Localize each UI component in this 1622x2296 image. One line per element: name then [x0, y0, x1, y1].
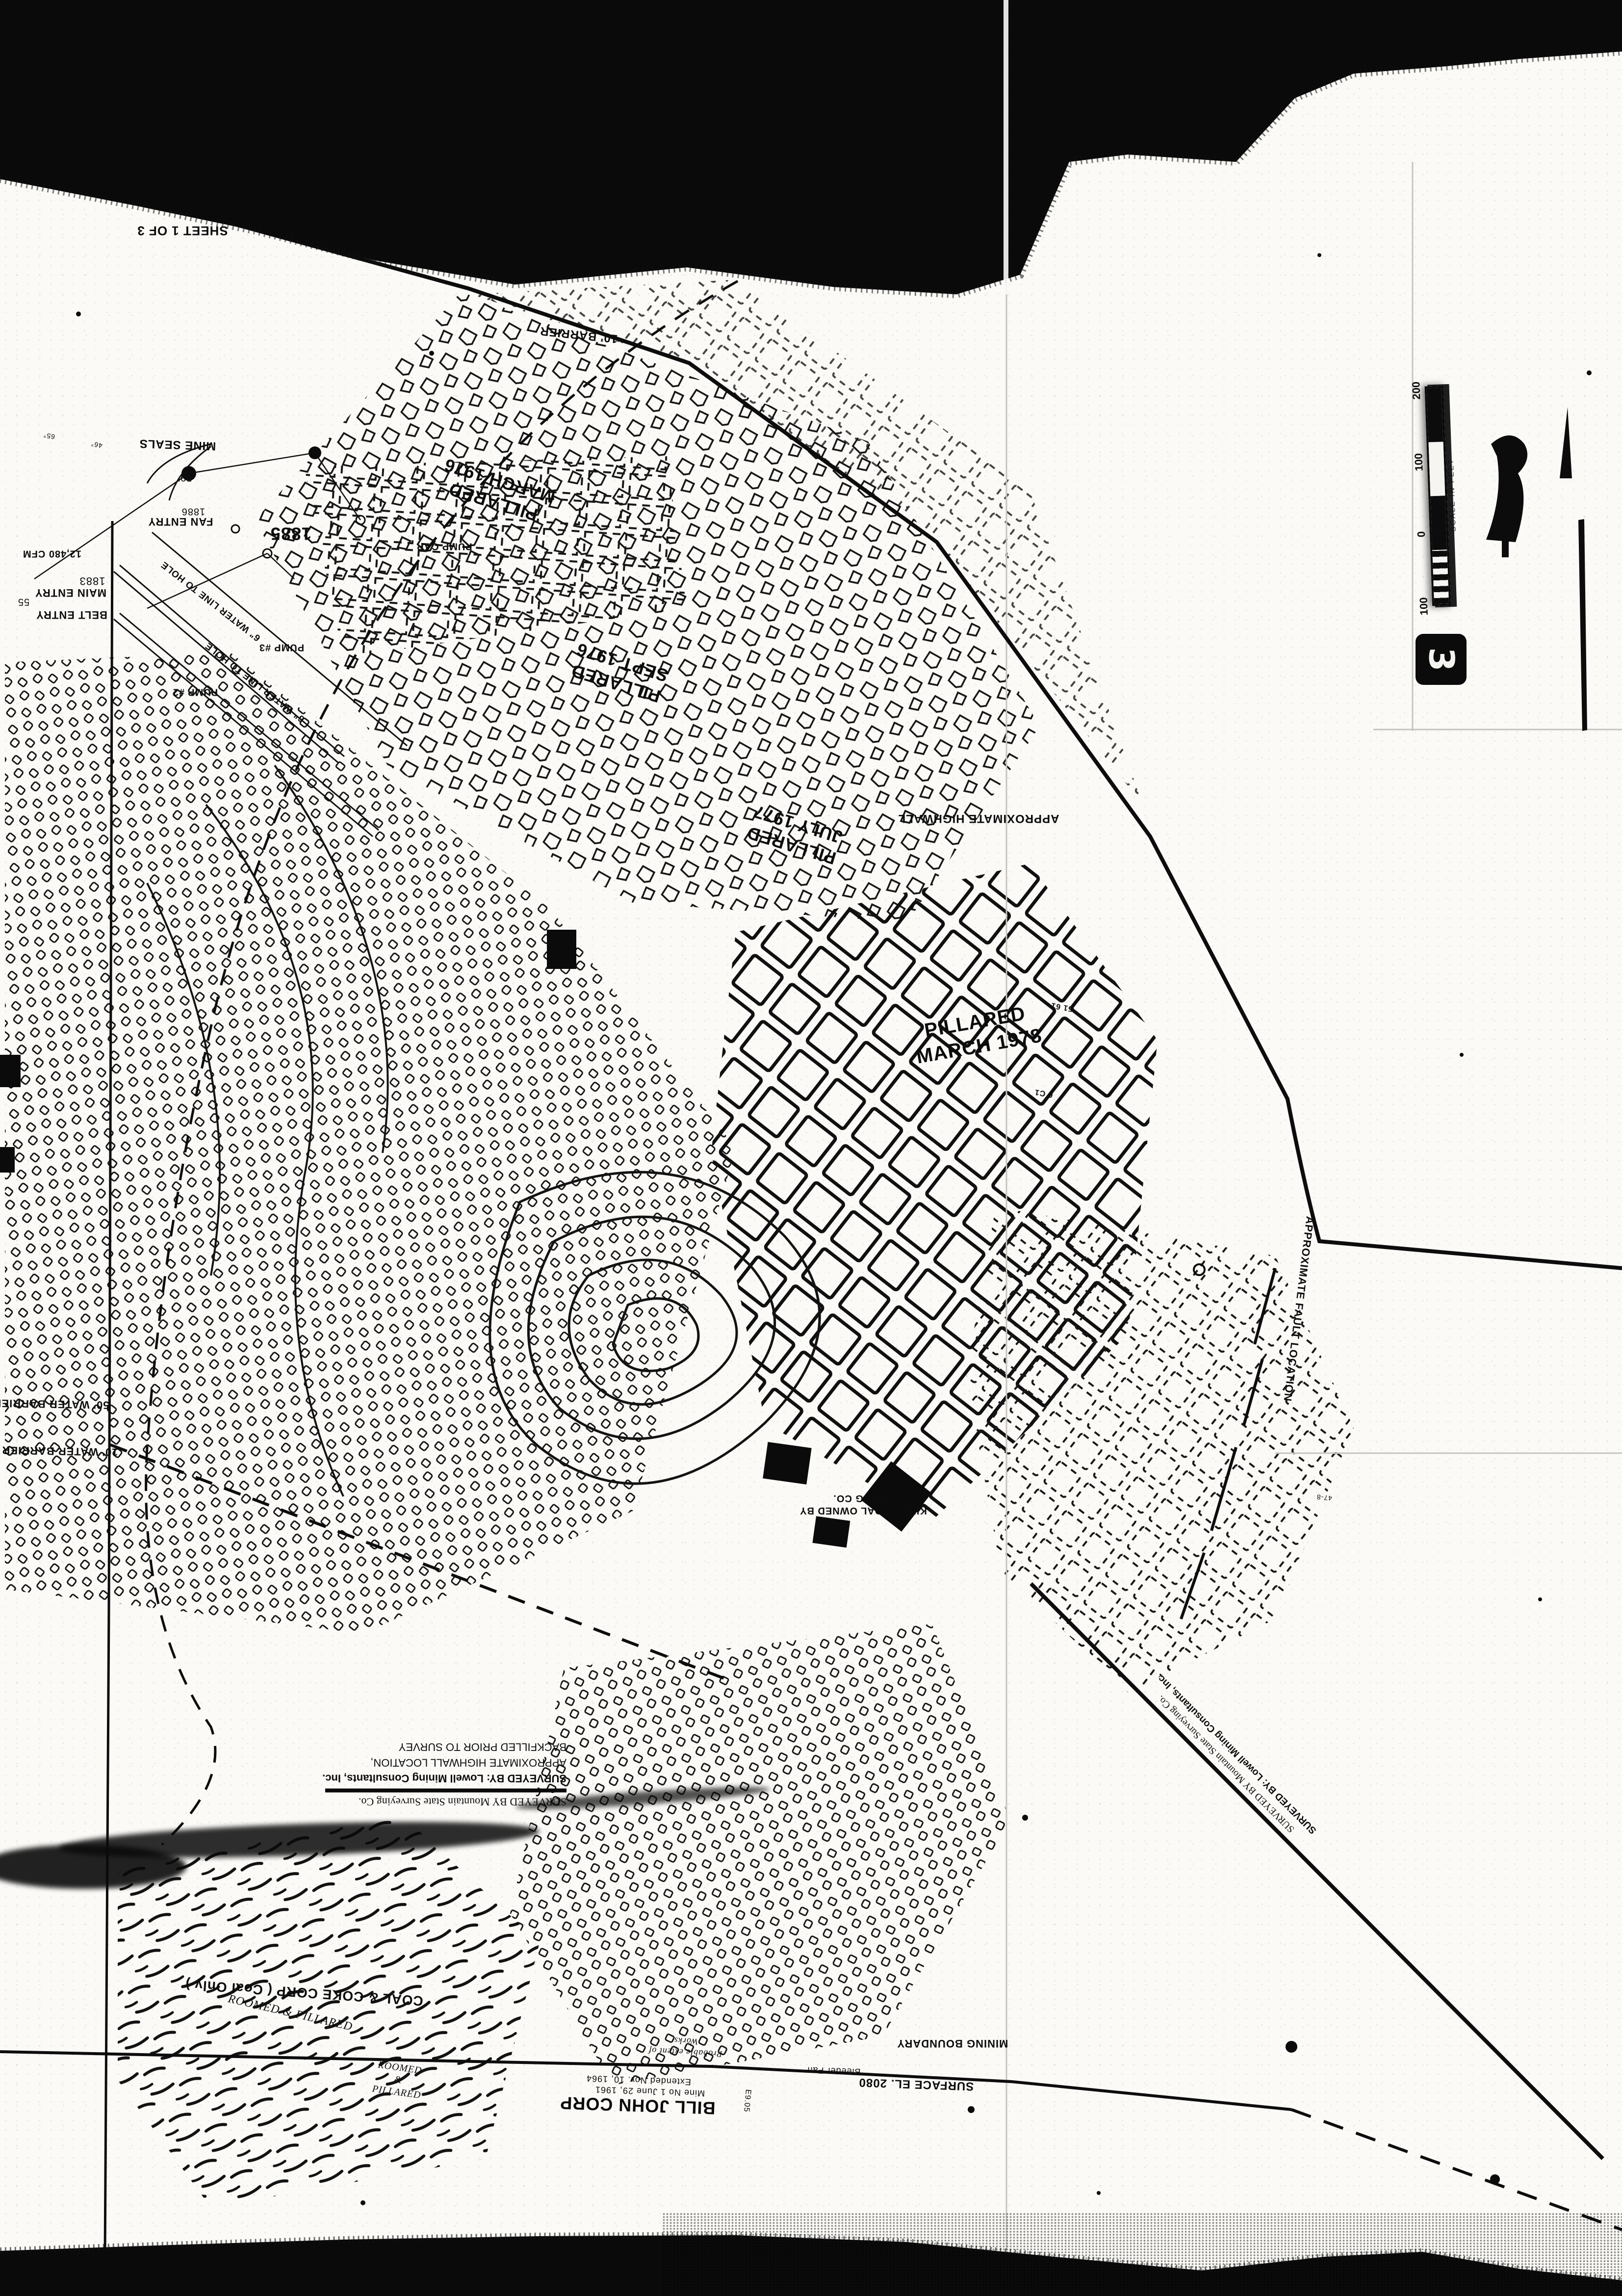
probable-extent-label: Probable extent of Works — [648, 2034, 723, 2060]
fan-entry-year-label: 1886 — [181, 505, 206, 518]
map-label-layer: SHEET 1 OF 310' BARRIERMINE SEALS50'12,4… — [0, 0, 1622, 2296]
bleeder-fan-label: Bleeder Fan — [807, 2064, 861, 2077]
bearing-46-label: 46° — [90, 439, 103, 449]
pillared-sept-1976-label: PILLARED SEPT 1976 — [567, 638, 671, 708]
surveyed-by-line: SURVEYED BY: Lowell Mining Consultants, … — [321, 1771, 566, 1786]
roomed-pillared-label-2: ROOMED & PILLARED — [371, 2059, 425, 2102]
sheet-number-tile: 3 — [1416, 634, 1467, 685]
mining-boundary-label: MINING BOUNDARY — [897, 2036, 1008, 2050]
pump-3-label: PUMP #3 — [259, 641, 304, 653]
scale-bar-cell — [1427, 388, 1443, 442]
barrier-55-label: 55 — [18, 596, 29, 608]
surface-elevation-label: SURFACE EL. 2080 — [858, 2075, 974, 2093]
scale-tick: 0 — [1415, 531, 1428, 537]
year-1885-label: 1885 — [270, 523, 311, 545]
pump-cap-label: PUMP CAP — [416, 540, 472, 552]
airflow-cfm-label: 12,480 CFM — [23, 548, 81, 560]
station-mark-51-61: 51 61 — [1050, 1000, 1074, 1014]
pillared-march-1978-label: PILLARED MARCH 1978 — [910, 999, 1044, 1069]
pillared-march-1976-label: PILLARED MARCH 1976 — [435, 454, 558, 530]
water-barrier-50-label: 50' WATER BARRIER — [0, 1396, 109, 1412]
water-barrier-10-label: 10' WATER BARRIER — [1, 1443, 118, 1459]
mine-seals-label: MINE SEALS — [139, 436, 216, 453]
approximate-fault-location-label: APPROXIMATE FAULT LOCATION — [1281, 1216, 1317, 1403]
scale-tick: 200 — [1410, 381, 1423, 400]
scale-bar-cell — [1430, 496, 1447, 550]
station-mark-47-8: 47-8 — [1316, 1492, 1332, 1502]
approximate-highwall-label: APPROXIMATE HIGHWALL — [898, 811, 1059, 826]
borehole-id-label: E9.05 — [741, 2089, 753, 2113]
barrier-10ft-label: 10' BARRIER — [539, 323, 618, 346]
main-entry-label: MAIN ENTRY — [35, 586, 106, 600]
surveyed-by-line: SURVEYED BY Mountain State Surveying Co. — [321, 1794, 566, 1810]
surveyor-credits-block: SURVEYED BY Mountain State Surveying Co.… — [321, 1739, 566, 1810]
scale-bar-cell — [1432, 549, 1449, 604]
pillared-july-1977-label: PILLARED JULY 1977 — [744, 800, 845, 869]
scale-bar-cell — [1429, 442, 1445, 496]
owner-parcel-label: KINCH COAL OWNED BY MINING CO. — [799, 1492, 927, 1516]
belt-entry-label: BELT ENTRY — [36, 608, 107, 622]
scale-bar-cells — [1425, 386, 1451, 606]
seal-50ft-label: 50' — [178, 471, 192, 484]
scale-tick: 100 — [1417, 597, 1431, 616]
sheet-number: 3 — [1421, 648, 1461, 672]
sheet-index-label: SHEET 1 OF 3 — [137, 223, 228, 239]
highwall-note-line: BACKFILLED PRIOR TO SURVEY — [321, 1739, 566, 1755]
water-line-label-1: 6" WATER LINE TO HOLE — [159, 558, 263, 643]
credits-rule — [325, 1789, 566, 1793]
highwall-note-line: APPROXIMATE HIGHWALL LOCATION, — [321, 1755, 566, 1771]
bearing-65-label: 65° — [43, 430, 56, 441]
scale-tick: 100 — [1412, 453, 1425, 471]
station-mark-6c1: 6 C1 — [1034, 1087, 1054, 1099]
coal-coke-corp-label: COAL & COKE CORP ( Coal Only ) — [184, 1976, 424, 2010]
pump-2-label: PUMP #2 — [173, 686, 218, 698]
scanned-mine-map-page: { "sheet": { "label": "SHEET 1 OF 3", "n… — [0, 0, 1622, 2296]
